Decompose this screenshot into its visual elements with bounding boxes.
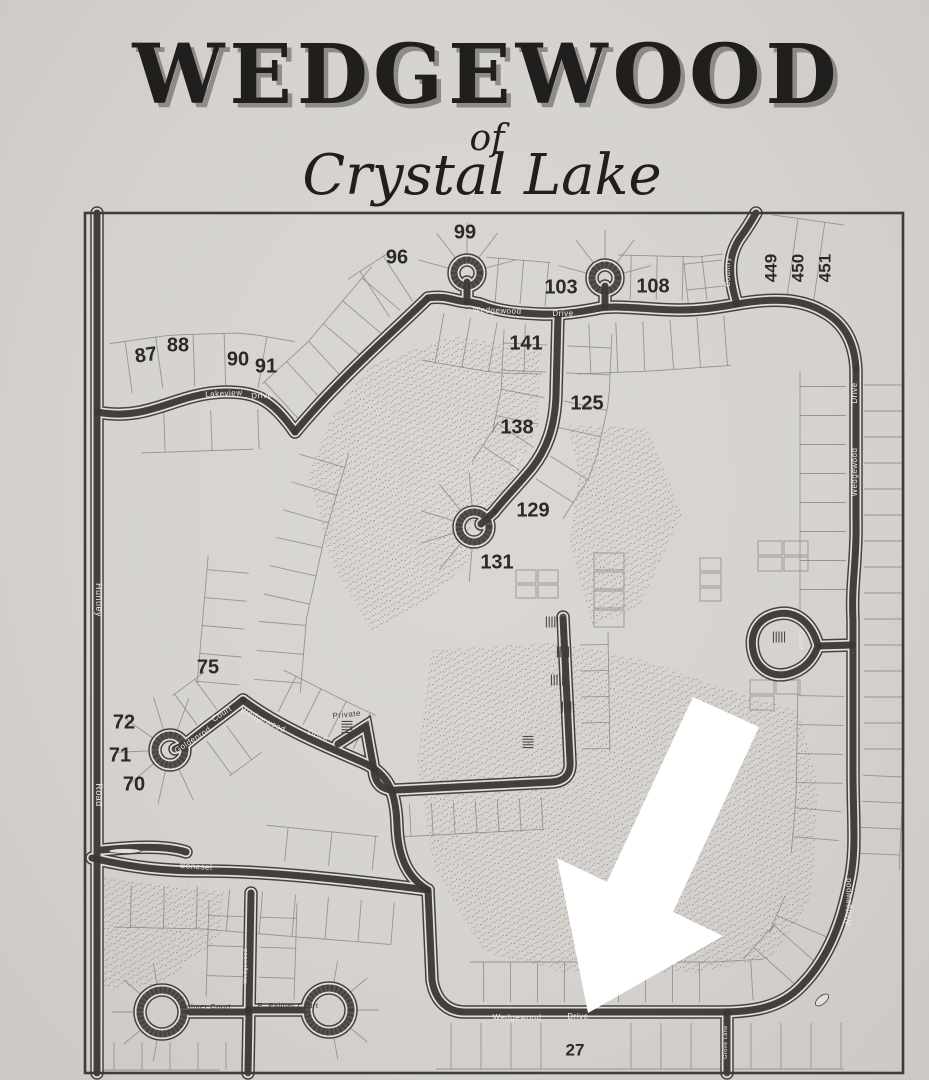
lot-number-103: 103 <box>544 276 577 298</box>
street-label-wedgewood: Wedgewood <box>850 448 859 497</box>
street-label-country: Country <box>723 257 732 287</box>
lot-number-141: 141 <box>509 332 542 354</box>
plat-map: WEDGEWOOD WEDGEWOOD of Crystal Lake Hunt… <box>0 0 929 1080</box>
street-label-wedgewood: Wedgewood <box>243 949 249 984</box>
lot-number-129: 129 <box>516 499 549 521</box>
lot-number-91: 91 <box>255 355 277 377</box>
map-title: WEDGEWOOD <box>131 27 841 123</box>
lot-number-27: 27 <box>566 1040 585 1059</box>
street-label-drive: Drive <box>850 382 859 403</box>
lot-number-72: 72 <box>113 711 135 733</box>
lot-number-75: 75 <box>197 656 219 678</box>
street-label-drive: Drive <box>251 390 273 400</box>
unit-hatch-mark <box>546 617 557 628</box>
plat-map-page: WEDGEWOOD WEDGEWOOD of Crystal Lake Hunt… <box>0 0 929 1080</box>
street-label-wedgewood: Wedgewood <box>473 305 522 316</box>
lot-number-70: 70 <box>123 773 145 795</box>
lot-number-138: 138 <box>500 416 533 438</box>
lot-number-87: 87 <box>133 343 158 368</box>
street-label-e-palmer-court: E. Palmer Court <box>258 1001 319 1010</box>
lot-number-449: 449 <box>761 254 780 282</box>
lot-number-99: 99 <box>454 221 476 243</box>
lot-number-450: 450 <box>788 254 807 282</box>
street-label-palmer-court: Palmer Court <box>181 1002 232 1011</box>
lot-number-131: 131 <box>480 551 513 573</box>
street-label-huntley: Huntley <box>94 583 104 617</box>
lot-number-451: 451 <box>815 254 834 282</box>
street-label-grove-lane: Grove Lane <box>723 1025 729 1059</box>
lot-number-71: 71 <box>109 744 131 766</box>
street-label-court: Court <box>797 630 804 650</box>
street-label-drive: Drive <box>567 1012 588 1021</box>
street-label-wedgewood: Wedgewood <box>844 878 853 927</box>
title-block: WEDGEWOOD WEDGEWOOD of Crystal Lake <box>131 27 846 208</box>
lot-number-108: 108 <box>636 275 669 297</box>
lot-number-125: 125 <box>570 392 603 414</box>
lot-number-90: 90 <box>227 348 249 370</box>
unit-hatch-mark <box>773 632 784 643</box>
map-subtitle: Crystal Lake <box>302 143 661 208</box>
lot-number-88: 88 <box>167 334 189 356</box>
lot-number-96: 96 <box>386 246 408 268</box>
street-label-drive: Drive <box>552 309 573 318</box>
street-label-private: Private <box>332 709 361 721</box>
street-label-wedgewood: Wedgewood <box>493 1013 542 1022</box>
street-label-road: Road <box>94 783 104 807</box>
